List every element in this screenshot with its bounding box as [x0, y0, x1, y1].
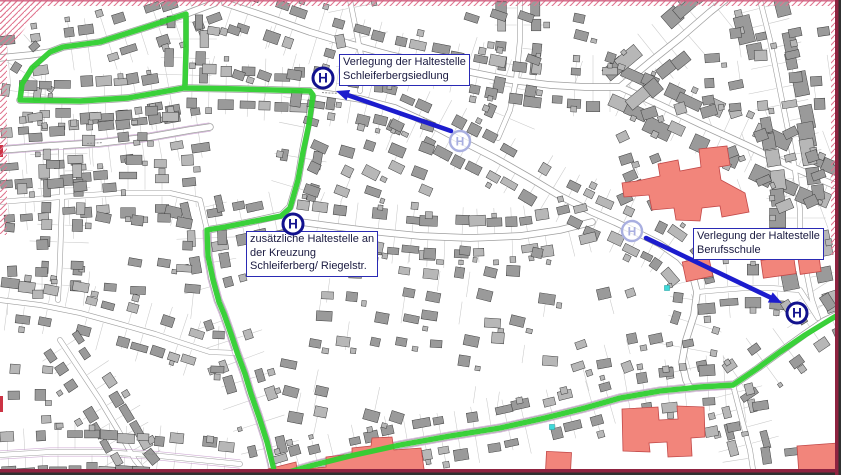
former-stop-h-letter: H	[628, 225, 637, 239]
annotation-line: der Kreuzung	[250, 247, 374, 261]
bus-stop-icon: H	[786, 302, 809, 325]
annotation-line: Schleiferbergsiedlung	[343, 70, 466, 84]
annotation-line: Berufsschule	[697, 244, 820, 258]
former-stop-icon: H	[450, 131, 470, 151]
annotation-verlegung-berufsschule: Verlegung der Haltestelle Berufsschule	[693, 228, 824, 260]
former-stop-h-letter: H	[456, 135, 465, 149]
annotation-line: Verlegung der Haltestelle	[343, 56, 466, 70]
bus-stop-h-letter: H	[792, 306, 802, 320]
annotation-verlegung-schleiferbergsiedlung: Verlegung der Haltestelle Schleiferbergs…	[339, 54, 470, 86]
bus-stop-h-letter: H	[318, 71, 328, 85]
annotation-line: Schleiferberg/ Riegelstr.	[250, 260, 374, 274]
bus-stop-icon: H	[282, 213, 305, 236]
annotation-zusaetzliche-haltestelle: zusätzliche Haltestelle an der Kreuzung …	[246, 231, 378, 277]
annotation-line: zusätzliche Haltestelle an	[250, 233, 374, 247]
bus-stop-h-letter: H	[288, 217, 298, 231]
annotation-line: Verlegung der Haltestelle	[697, 230, 820, 244]
relocation-map: H H Verlegung der Haltestelle Schleiferb…	[0, 0, 841, 475]
former-stop-icon: H	[622, 221, 642, 241]
bus-stop-icon: H	[312, 67, 335, 90]
